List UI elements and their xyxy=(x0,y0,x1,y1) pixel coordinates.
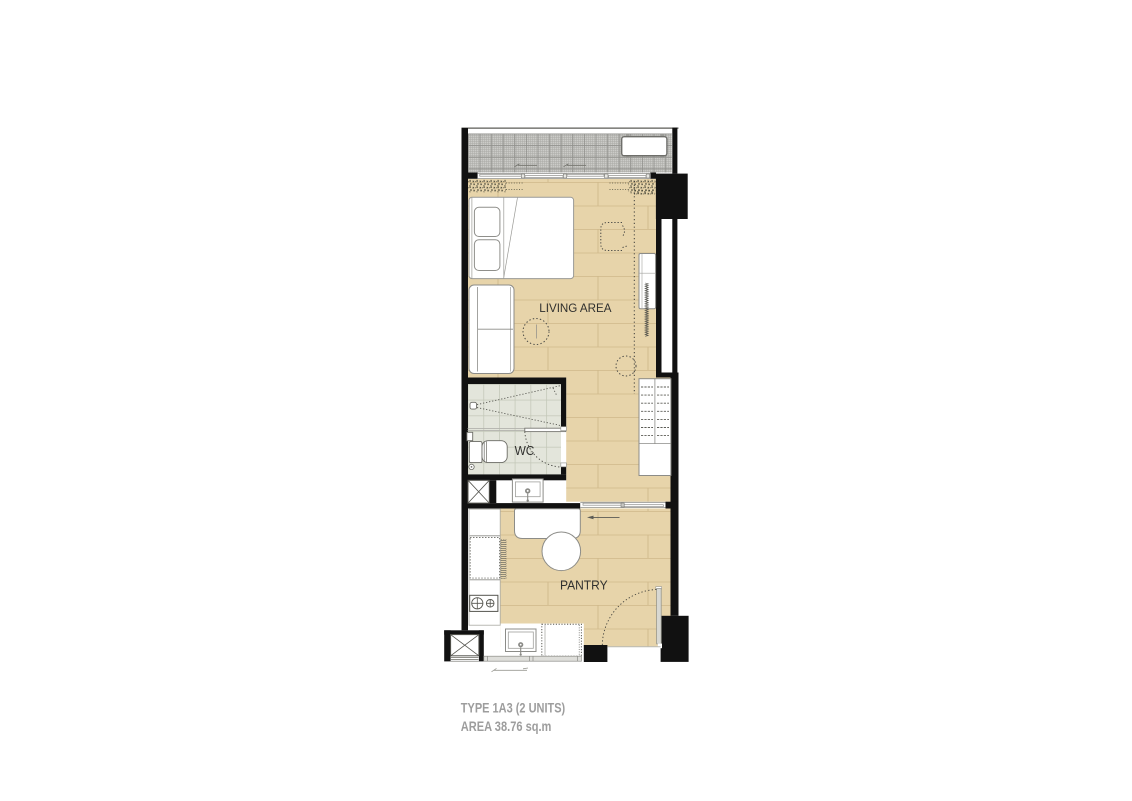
svg-text:TYPE 1A3 (2 UNITS): TYPE 1A3 (2 UNITS) xyxy=(461,700,565,715)
svg-text:WC: WC xyxy=(515,444,535,458)
svg-text:PANTRY: PANTRY xyxy=(560,578,608,593)
svg-text:LIVING AREA: LIVING AREA xyxy=(539,301,612,315)
svg-text:AREA 38.76 sq.m: AREA 38.76 sq.m xyxy=(461,719,552,734)
